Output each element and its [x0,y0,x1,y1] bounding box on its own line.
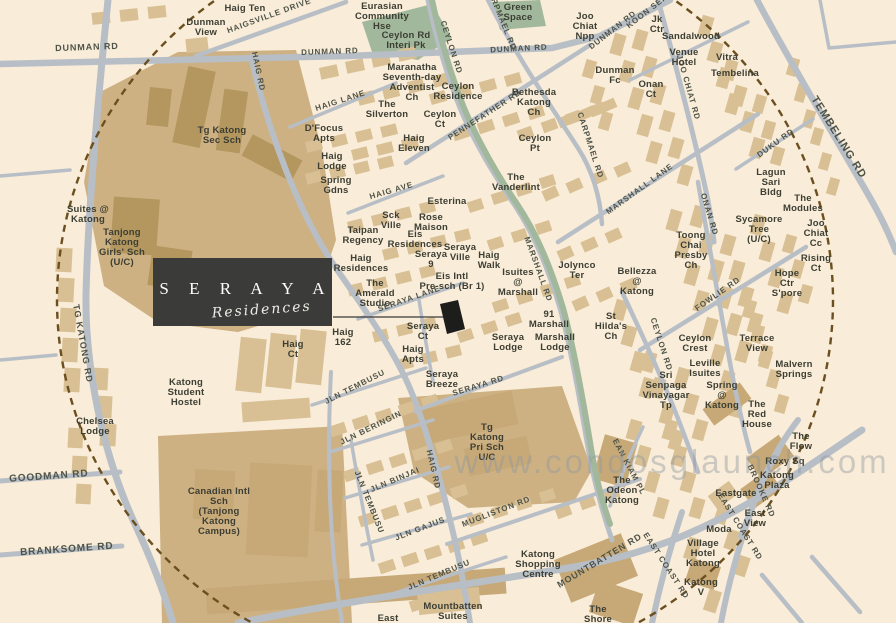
place-label: Esterina [427,196,467,207]
place-label: Suites @Katong [67,204,109,225]
building [119,8,138,22]
seraya-location-map: DUNMAN RDDUNMAN RDDUNMAN RDHAIGSVILLE DR… [0,0,896,623]
place-label: Sandalwood [662,31,720,42]
project-logo: S E R A Y A Residences [153,258,333,326]
place-label: TaipanRegency [342,225,384,246]
watermark: www.condosglaunch.com [453,443,889,480]
place-label: HaigLodge [317,151,347,172]
place-label: SerayaLodge [492,332,525,353]
place-label: MarshallLodge [535,332,575,353]
map-canvas: DUNMAN RDDUNMAN RDDUNMAN RDHAIGSVILLE DR… [0,0,896,623]
place-label: MalvernSprings [775,359,812,380]
place-label: Moda [706,524,732,535]
place-label: VillageHotelKatong [686,538,720,569]
place-label: HaigApts [402,344,424,365]
place-label: HaigWalk [478,250,501,271]
building [147,5,166,19]
place-label: SckVille [381,210,401,231]
building [146,87,172,127]
place-label: EastView [744,508,767,529]
place-label: Tembelina [711,68,760,79]
place-label: East [378,613,400,623]
place-label: VenueHotel [670,47,699,68]
place-label: SpringGdns [320,175,351,196]
place-label: ChelseaLodge [76,416,114,437]
place-label: Eastgate [715,488,756,499]
place-label: SerayaBreeze [426,369,459,390]
building [61,338,78,363]
place-label: Tg KatongSec Sch [198,125,247,146]
place-label: GreenSpace [504,2,533,23]
place-label: Vitra [716,52,738,63]
place-label: Ceylon RdInteri Pk [382,30,431,51]
place-label: LevilleIsuites [689,358,721,379]
place-label: Haig162 [332,327,353,348]
logo-title: S E R A Y A [159,279,332,298]
building [246,462,313,557]
place-label: Haig Ten [224,3,265,14]
building [55,248,72,273]
place-label: CeylonCrest [679,333,712,354]
place-label: KatongStudentHostel [168,377,205,408]
building [57,278,74,303]
building [75,484,91,505]
